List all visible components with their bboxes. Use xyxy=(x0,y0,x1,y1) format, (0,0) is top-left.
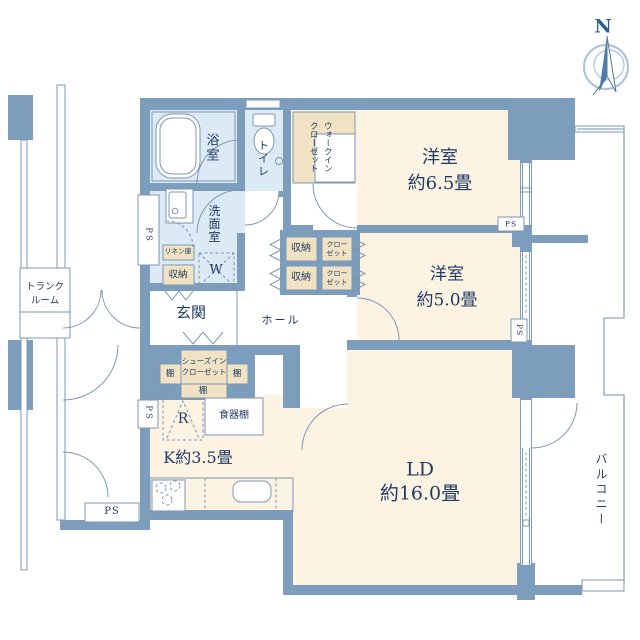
floorplan-drawing xyxy=(0,0,640,640)
bed1-size-label: 約6.5畳 xyxy=(408,175,473,193)
closet-label-2a: クロー xyxy=(327,271,348,278)
ps-label-3: PS xyxy=(104,507,120,517)
toilet-icon xyxy=(253,114,275,126)
ps-label-1: PS xyxy=(144,227,153,243)
balcony-door-arc xyxy=(532,403,577,448)
trunk-label-2: ルーム xyxy=(31,296,59,306)
wic-label-2: クローゼット xyxy=(309,122,318,173)
entrance-door-arc-1 xyxy=(102,290,140,328)
dish-shelf-label: 食器棚 xyxy=(219,411,249,421)
hall-label: ホール xyxy=(262,315,301,326)
wic-label-1: ウォークイン xyxy=(323,122,332,173)
exterior-corridor xyxy=(20,85,70,570)
washer-label: W xyxy=(209,264,222,277)
storage-label-1: 収納 xyxy=(168,270,187,280)
fridge-label: R xyxy=(178,412,189,426)
shelf-label-2: 棚 xyxy=(233,370,242,379)
bath-label: 浴室 xyxy=(205,133,218,163)
balcony-label: バルコニー xyxy=(595,453,607,528)
floorplan: N 洋室 約6.5畳 洋室 約5.0畳 LD 約16.0畳 K約3.5畳 玄関 … xyxy=(0,0,640,640)
washroom-label: 洗面室 xyxy=(208,205,220,244)
storage-label-3: 収納 xyxy=(291,273,311,283)
shelf-label-3: 棚 xyxy=(199,387,208,396)
porch-door-arc-2 xyxy=(63,452,108,497)
sic-label-2: クローゼット xyxy=(182,368,227,376)
shelf-label-1: 棚 xyxy=(166,370,175,379)
toilet-door-arc xyxy=(245,191,279,225)
north-label: N xyxy=(594,18,611,37)
toilet-label: トイレ xyxy=(258,140,269,179)
storage-label-2: 収納 xyxy=(291,244,311,254)
kitchen-sink-icon xyxy=(233,481,271,502)
bed2-size-label: 約5.0畳 xyxy=(416,293,477,310)
closet-label-1b: ゼット xyxy=(327,251,348,258)
trunk-label-1: トランク xyxy=(26,282,64,292)
compass-icon xyxy=(584,36,628,95)
genkan-label: 玄関 xyxy=(176,306,206,321)
toilet-window xyxy=(246,100,280,108)
bed2-name-label: 洋室 xyxy=(430,267,464,284)
ps-label-4: PS xyxy=(505,220,517,228)
bathtub-icon xyxy=(156,114,200,178)
bed1-name-label: 洋室 xyxy=(422,149,458,167)
sic-label-1: シューズイン xyxy=(182,357,227,365)
ld-name-label: LD xyxy=(406,461,434,480)
linen-label: リネン庫 xyxy=(164,249,191,256)
ld-size-label: 約16.0畳 xyxy=(380,485,460,504)
ps-label-2: PS xyxy=(144,405,153,421)
ps-label-5: PS xyxy=(515,324,523,336)
kitchen-label: K約3.5畳 xyxy=(163,450,232,466)
porch-door-arc-1 xyxy=(63,345,118,400)
closet-label-1a: クロー xyxy=(327,242,348,249)
closet-label-2b: ゼット xyxy=(327,280,348,287)
